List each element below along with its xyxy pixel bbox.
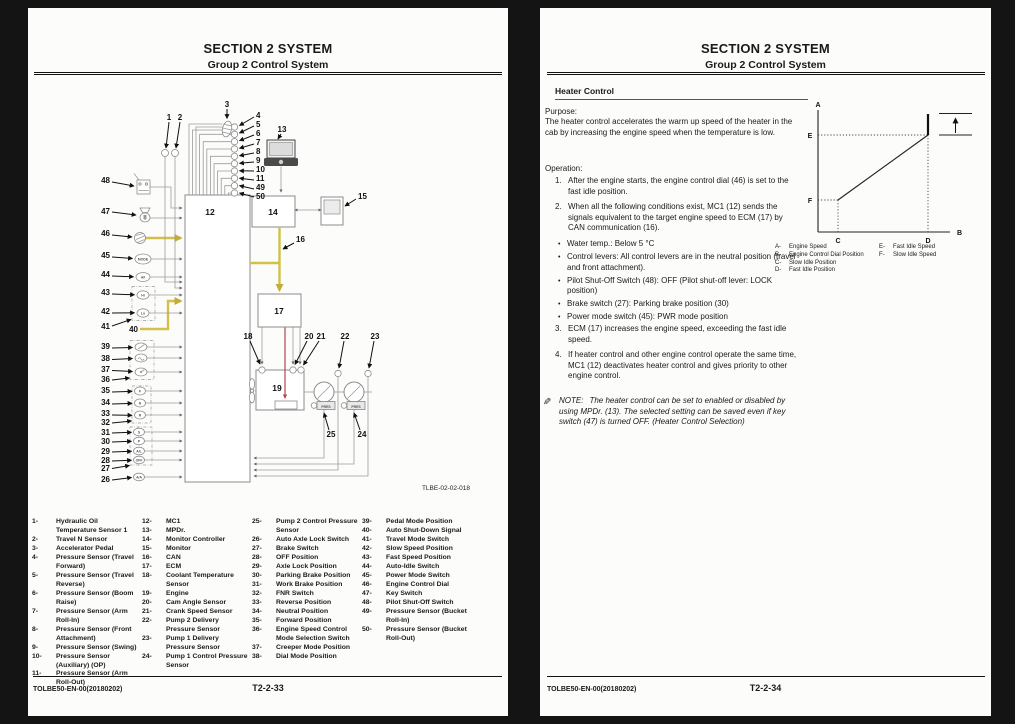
legend-item: 43-Fast Speed Position (362, 554, 469, 563)
legend-item: 25-Pump 2 Control Pressure Sensor (252, 518, 359, 536)
page-subtitle: Group 2 Control System (540, 59, 991, 71)
svg-text:6: 6 (256, 129, 261, 138)
legend-item: 46-Engine Control Dial (362, 581, 469, 590)
condition-item: •Control levers: All control levers are … (558, 252, 800, 273)
graph-legend-item: D-Fast Idle Position (775, 267, 879, 275)
legend-column-3: 25-Pump 2 Control Pressure Sensor26-Auto… (252, 518, 359, 662)
graph-series (838, 114, 928, 200)
legend-item: 16-CAN (142, 554, 249, 563)
tick-e-label: E (808, 133, 813, 140)
svg-text:16: 16 (296, 235, 305, 244)
svg-text:43: 43 (101, 288, 110, 297)
callout-17: 17 (274, 306, 284, 316)
graph-axis-letters: A B E F C D (808, 102, 962, 245)
svg-text:8: 8 (256, 147, 261, 156)
operation-steps-1-2: 1.After the engine starts, the engine co… (555, 176, 801, 239)
footer-rule (547, 676, 985, 677)
legend-item: 44-Auto-Idle Switch (362, 563, 469, 572)
condition-item: •Brake switch (27): Parking brake positi… (558, 299, 800, 310)
legend-item: 20-Cam Angle Sensor (142, 599, 249, 608)
svg-text:4: 4 (256, 111, 261, 120)
legend-item: 12-MC1 (142, 518, 249, 527)
lo-label: Lo (141, 311, 145, 315)
travel-sensors (162, 150, 183, 289)
bullet-marker: • (558, 276, 567, 297)
axle-lock-label: A/L (136, 449, 141, 453)
legend-item: 15-Monitor (142, 545, 249, 554)
laptop-icon (264, 140, 298, 192)
svg-text:24: 24 (358, 430, 367, 439)
right-page: SECTION 2 SYSTEM Group 2 Control System … (540, 8, 991, 716)
graph-axes (818, 110, 950, 232)
section-title-rule (555, 99, 808, 100)
graph-legend-left: A-Engine SpeedB-Engine Control Dial Posi… (775, 244, 879, 275)
note-text: NOTE:The heater control can be set to en… (543, 396, 801, 428)
legend-item: 22-Pump 2 Delivery Pressure Sensor (142, 617, 249, 635)
travel-mode-switch-group: Hi Lo (132, 287, 182, 321)
legend-item: 41-Travel Mode Switch (362, 536, 469, 545)
monitor-icon (295, 197, 343, 225)
engine-control-dial-icon (135, 233, 146, 244)
svg-text:29: 29 (101, 447, 110, 456)
pen-icon: ✎ (543, 396, 551, 409)
auto-idle-label: A/I (141, 275, 145, 279)
legend-item: 2-Travel N Sensor (32, 536, 139, 545)
bullet-marker: • (558, 299, 567, 310)
svg-text:26: 26 (101, 475, 110, 484)
svg-text:42: 42 (101, 307, 110, 316)
off-label: OFF (136, 458, 143, 462)
svg-text:25: 25 (327, 430, 336, 439)
legend-item: 10-Pressure Sensor (Auxiliary) (OP) (32, 653, 139, 671)
note-block: ✎ NOTE:The heater control can be set to … (543, 396, 801, 428)
footer-rule (33, 676, 502, 677)
legend-item: 9-Pressure Sensor (Swing) (32, 644, 139, 653)
page-number: T2-2-34 (540, 683, 991, 693)
legend-item: 14-Monitor Controller (142, 536, 249, 545)
ecm-box: 17 (258, 294, 301, 327)
legend-item: 39-Pedal Mode Position (362, 518, 469, 527)
pump-delivery-sensors (335, 370, 371, 376)
increase-indicator (939, 114, 972, 136)
svg-text:30: 30 (101, 437, 110, 446)
svg-text:35: 35 (101, 386, 110, 395)
svg-text:40: 40 (129, 325, 138, 334)
svg-text:1: 1 (167, 113, 172, 122)
manual-spread: { "left_page": { "header": { "title": "S… (0, 0, 1015, 724)
figure-code: TLBE-02-02-018 (422, 485, 470, 492)
control-system-diagram: 12 14 17 (88, 96, 508, 511)
svg-text:50: 50 (256, 192, 265, 201)
mode-label: MODE (138, 257, 149, 261)
condition-item: •Pilot Shut-Off Switch (48): OFF (Pilot … (558, 276, 800, 297)
header-rule (34, 72, 502, 75)
svg-text:22: 22 (341, 332, 350, 341)
svg-text:27: 27 (101, 464, 110, 473)
svg-text:38: 38 (101, 354, 110, 363)
bullet-marker: • (558, 252, 567, 273)
graph-legend-item: F-Slow Idle Speed (879, 252, 984, 260)
legend-item: 29-Axle Lock Position (252, 563, 359, 572)
graph-legend-item: A-Engine Speed (775, 244, 879, 252)
svg-text:33: 33 (101, 409, 110, 418)
legend-item: 40-Auto Shut-Down Signal (362, 527, 469, 536)
tick-f-label: F (808, 198, 813, 205)
legend-item: 34-Neutral Position (252, 608, 359, 617)
pres-label-1: PRES (321, 405, 331, 409)
svg-text:37: 37 (101, 365, 110, 374)
svg-text:5: 5 (256, 120, 261, 129)
graph-legend-item: C-Slow Idle Position (775, 260, 879, 268)
auto-axle-label: A/A (136, 475, 142, 479)
legend-item: 47-Key Switch (362, 590, 469, 599)
legend-item: 37-Creeper Mode Position (252, 644, 359, 653)
page-number: T2-2-33 (28, 683, 508, 693)
pres-label-2: PRES (351, 405, 361, 409)
mc1-box: 12 (185, 195, 250, 482)
svg-text:31: 31 (101, 428, 110, 437)
fnr-switch-group: F N R (132, 386, 182, 423)
legend-item: 3-Accelerator Pedal (32, 545, 139, 554)
graph-legend-right: E-Fast Idle SpeedF-Slow Idle Speed (879, 244, 984, 260)
svg-text:15: 15 (358, 192, 367, 201)
legend-item: 1-Hydraulic Oil Temperature Sensor 1 (32, 518, 139, 536)
svg-text:9: 9 (256, 156, 261, 165)
legend-item: 30-Parking Brake Position (252, 572, 359, 581)
operation-step: 3.ECM (17) increases the engine speed, e… (555, 324, 801, 345)
legend-column-4: 39-Pedal Mode Position40-Auto Shut-Down … (362, 518, 469, 644)
svg-text:23: 23 (371, 332, 380, 341)
legend-item: 21-Crank Speed Sensor (142, 608, 249, 617)
legend-item: 7-Pressure Sensor (Arm Roll-In) (32, 608, 139, 626)
brake-switch-group: S P A/L OFF (130, 427, 182, 465)
purpose-label: Purpose: (545, 107, 577, 118)
legend-item: 45-Power Mode Switch (362, 572, 469, 581)
hi-label: Hi (141, 293, 144, 297)
svg-text:10: 10 (256, 165, 265, 174)
legend-item: 6-Pressure Sensor (Boom Raise) (32, 590, 139, 608)
legend-item: 42-Slow Speed Position (362, 545, 469, 554)
operation-label: Operation: (545, 164, 582, 175)
graph-guides (818, 135, 928, 232)
legend-item: 31-Work Brake Position (252, 581, 359, 590)
svg-text:49: 49 (256, 183, 265, 192)
operation-step: 4.If heater control and other engine con… (555, 350, 801, 382)
legend-item: 19-Engine (142, 590, 249, 599)
legend-item: 49-Pressure Sensor (Bucket Roll-In) (362, 608, 469, 626)
svg-text:20: 20 (305, 332, 314, 341)
svg-text:45: 45 (101, 251, 110, 260)
svg-text:7: 7 (256, 138, 261, 147)
svg-text:48: 48 (101, 176, 110, 185)
page-subtitle: Group 2 Control System (28, 59, 508, 71)
svg-text:36: 36 (101, 375, 110, 384)
callout-19: 19 (272, 383, 282, 393)
legend-item: 23-Pump 1 Delivery Pressure Sensor (142, 635, 249, 653)
legend-item: 24-Pump 1 Control Pressure Sensor (142, 653, 249, 671)
axis-a-label: A (815, 102, 820, 109)
svg-text:21: 21 (317, 332, 326, 341)
svg-text:44: 44 (101, 270, 110, 279)
svg-text:11: 11 (256, 174, 265, 183)
svg-text:46: 46 (101, 229, 110, 238)
legend-item: 50-Pressure Sensor (Bucket Roll-Out) (362, 626, 469, 644)
operation-step: 2.When all the following conditions exis… (555, 202, 801, 234)
engine-box: 19 (256, 370, 304, 410)
legend-item: 18-Coolant Temperature Sensor (142, 572, 249, 590)
legend-column-1: 1-Hydraulic Oil Temperature Sensor 12-Tr… (32, 518, 139, 688)
legend-item: 4-Pressure Sensor (Travel Forward) (32, 554, 139, 572)
axis-b-label: B (957, 230, 962, 237)
speed-control-mode-switch-group (130, 341, 182, 380)
operation-steps-3-4: 3.ECM (17) increases the engine speed, e… (555, 324, 801, 387)
svg-text:39: 39 (101, 342, 110, 351)
svg-text:34: 34 (101, 398, 110, 407)
graph-legend-item: B-Engine Control Dial Position (775, 252, 879, 260)
fan-icon (249, 379, 256, 403)
legend-item: 26-Auto Axle Lock Switch (252, 536, 359, 545)
svg-text:47: 47 (101, 207, 110, 216)
section-title: Heater Control (555, 86, 614, 96)
svg-text:3: 3 (225, 100, 230, 109)
svg-text:2: 2 (178, 113, 183, 122)
svg-text:32: 32 (101, 418, 110, 427)
header-rule (547, 72, 985, 75)
legend-item: 13-MPDr. (142, 527, 249, 536)
engine-speed-graph: A B E F C D (795, 100, 1000, 248)
forward-label: F (139, 389, 141, 393)
purpose-text: The heater control accelerates the warm … (545, 117, 799, 138)
page-title: SECTION 2 SYSTEM (28, 41, 508, 56)
legend-item: 38-Dial Mode Position (252, 653, 359, 662)
legend-item: 33-Reverse Position (252, 599, 359, 608)
bullet-marker: • (558, 312, 567, 323)
legend-item: 32-FNR Switch (252, 590, 359, 599)
condition-list: •Water temp.: Below 5 °C•Control levers:… (558, 239, 800, 325)
bullet-marker: • (558, 239, 567, 250)
legend-item: 17-ECM (142, 563, 249, 572)
legend-item: 28-OFF Position (252, 554, 359, 563)
legend-item: 35-Forward Position (252, 617, 359, 626)
callout-12: 12 (205, 207, 215, 217)
svg-text:41: 41 (101, 322, 110, 331)
note-label: NOTE: (559, 396, 589, 405)
condition-item: •Power mode switch (45): PWR mode positi… (558, 312, 800, 323)
left-page: SECTION 2 SYSTEM Group 2 Control System … (28, 8, 508, 716)
auto-axle-lock-switch-icon: A/A (134, 473, 183, 481)
svg-text:13: 13 (278, 125, 287, 134)
legend-item: 5-Pressure Sensor (Travel Reverse) (32, 572, 139, 590)
legend-item: 27-Brake Switch (252, 545, 359, 554)
page-title: SECTION 2 SYSTEM (540, 41, 991, 56)
callout-14: 14 (268, 207, 278, 217)
legend-column-2: 12-MC113-MPDr.14-Monitor Controller15-Mo… (142, 518, 249, 670)
legend-item: 48-Pilot Shut-Off Switch (362, 599, 469, 608)
svg-text:18: 18 (244, 332, 253, 341)
graph-legend-item: E-Fast Idle Speed (879, 244, 984, 252)
pressure-sensor-stack (196, 124, 238, 196)
condition-item: •Water temp.: Below 5 °C (558, 239, 800, 250)
legend-item: 36-Engine Speed Control Mode Selection S… (252, 626, 359, 644)
operation-step: 1.After the engine starts, the engine co… (555, 176, 801, 197)
key-switch-icon (140, 208, 182, 222)
legend-item: 8-Pressure Sensor (Front Attachment) (32, 626, 139, 644)
